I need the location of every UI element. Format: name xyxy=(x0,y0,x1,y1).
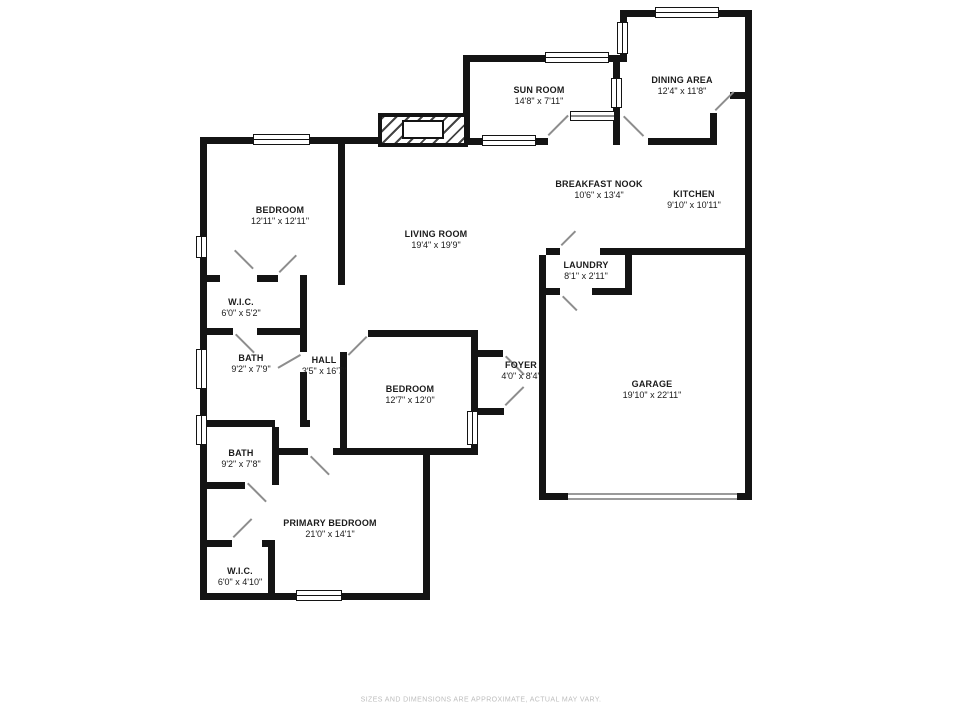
wall xyxy=(600,248,752,255)
room-label-hall: HALL 3'5" x 16'7" xyxy=(302,355,346,377)
room-label-primary-bedroom: PRIMARY BEDROOM 21'0" x 14'1" xyxy=(283,518,377,540)
room-dims: 12'4" x 11'8" xyxy=(651,86,712,97)
room-dims: 6'0" x 4'10" xyxy=(218,577,262,588)
room-dims: 4'0" x 8'4" xyxy=(501,371,540,382)
room-dims: 6'0" x 5'2" xyxy=(221,308,260,319)
room-label-sun-room: SUN ROOM 14'8" x 7'11" xyxy=(513,85,564,107)
room-name: BREAKFAST NOOK xyxy=(555,179,642,190)
room-dims: 21'0" x 14'1" xyxy=(283,529,377,540)
room-name: GARAGE xyxy=(623,379,682,390)
room-name: W.I.C. xyxy=(221,297,260,308)
room-dims: 19'4" x 19'9" xyxy=(405,240,468,251)
window xyxy=(196,415,207,445)
wall xyxy=(300,335,307,352)
wall xyxy=(625,255,632,295)
room-dims: 14'8" x 7'11" xyxy=(513,96,564,107)
room-label-wic2: W.I.C. 6'0" x 4'10" xyxy=(218,566,262,588)
window xyxy=(196,349,207,389)
window xyxy=(655,7,719,18)
room-name: W.I.C. xyxy=(218,566,262,577)
door-swing xyxy=(548,115,569,136)
wall xyxy=(268,540,275,600)
wall xyxy=(257,275,278,282)
room-label-foyer: FOYER 4'0" x 8'4" xyxy=(501,360,540,382)
room-label-bedroom1: BEDROOM 12'11" x 12'11" xyxy=(251,205,309,227)
wall xyxy=(200,275,220,282)
room-name: FOYER xyxy=(501,360,540,371)
room-dims: 8'1" x 2'11" xyxy=(563,271,608,282)
window xyxy=(570,111,615,121)
door-swing xyxy=(623,116,644,137)
window xyxy=(296,590,342,601)
room-dims: 9'10" x 10'11" xyxy=(667,200,721,211)
wall xyxy=(300,372,307,427)
room-label-kitchen: KITCHEN 9'10" x 10'11" xyxy=(667,189,721,211)
wall xyxy=(546,288,560,295)
window xyxy=(253,134,310,145)
wall xyxy=(745,10,752,500)
wall xyxy=(200,482,245,489)
door-swing xyxy=(233,518,253,538)
room-name: PRIMARY BEDROOM xyxy=(283,518,377,529)
wall xyxy=(200,328,233,335)
wall xyxy=(423,448,430,600)
room-label-bath1: BATH 9'2" x 7'9" xyxy=(231,353,270,375)
fireplace-firebox xyxy=(402,120,444,139)
door-swing xyxy=(505,386,525,406)
garage-door xyxy=(568,493,737,500)
window xyxy=(196,236,207,258)
wall xyxy=(648,138,713,145)
room-name: HALL xyxy=(302,355,346,366)
window xyxy=(617,22,628,54)
window xyxy=(467,411,478,445)
door-swing xyxy=(561,230,577,246)
room-dims: 9'2" x 7'8" xyxy=(221,459,260,470)
door-swing xyxy=(348,336,368,356)
wall xyxy=(300,275,307,335)
room-label-bath2: BATH 9'2" x 7'8" xyxy=(221,448,260,470)
wall xyxy=(478,350,503,357)
room-label-bedroom2: BEDROOM 12'7" x 12'0" xyxy=(385,384,434,406)
wall xyxy=(278,448,308,455)
floor-plan: BEDROOM 12'11" x 12'11" LIVING ROOM 19'4… xyxy=(0,0,960,720)
room-name: BATH xyxy=(231,353,270,364)
room-dims: 10'6" x 13'4" xyxy=(555,190,642,201)
window xyxy=(545,52,609,63)
room-name: LAUNDRY xyxy=(563,260,608,271)
room-dims: 9'2" x 7'9" xyxy=(231,364,270,375)
room-dims: 12'11" x 12'11" xyxy=(251,216,309,227)
wall xyxy=(546,248,560,255)
room-name: SUN ROOM xyxy=(513,85,564,96)
room-name: BEDROOM xyxy=(385,384,434,395)
door-swing xyxy=(277,354,301,369)
room-label-breakfast-nook: BREAKFAST NOOK 10'6" x 13'4" xyxy=(555,179,642,201)
room-label-laundry: LAUNDRY 8'1" x 2'11" xyxy=(563,260,608,282)
room-name: BATH xyxy=(221,448,260,459)
wall xyxy=(272,427,279,485)
wall xyxy=(368,330,478,337)
door-swing xyxy=(715,91,735,111)
window xyxy=(611,78,622,108)
room-name: DINING AREA xyxy=(651,75,712,86)
wall xyxy=(200,420,275,427)
room-dims: 3'5" x 16'7" xyxy=(302,366,346,377)
room-dims: 19'10" x 22'11" xyxy=(623,390,682,401)
room-label-dining-area: DINING AREA 12'4" x 11'8" xyxy=(651,75,712,97)
window xyxy=(482,135,536,146)
disclaimer-text: SIZES AND DIMENSIONS ARE APPROXIMATE, AC… xyxy=(361,697,602,704)
room-dims: 12'7" x 12'0" xyxy=(385,395,434,406)
room-label-garage: GARAGE 19'10" x 22'11" xyxy=(623,379,682,401)
wall xyxy=(710,113,717,145)
room-name: BEDROOM xyxy=(251,205,309,216)
room-label-living-room: LIVING ROOM 19'4" x 19'9" xyxy=(405,229,468,251)
door-swing xyxy=(247,483,267,503)
wall xyxy=(338,137,345,285)
wall xyxy=(333,448,478,455)
room-label-wic1: W.I.C. 6'0" x 5'2" xyxy=(221,297,260,319)
door-swing xyxy=(562,296,578,312)
wall xyxy=(737,493,752,500)
wall xyxy=(478,408,504,415)
room-name: LIVING ROOM xyxy=(405,229,468,240)
door-swing xyxy=(279,255,297,273)
room-name: KITCHEN xyxy=(667,189,721,200)
door-swing xyxy=(310,456,330,476)
wall xyxy=(200,540,232,547)
door-swing xyxy=(234,250,254,270)
door-swing xyxy=(235,334,255,354)
